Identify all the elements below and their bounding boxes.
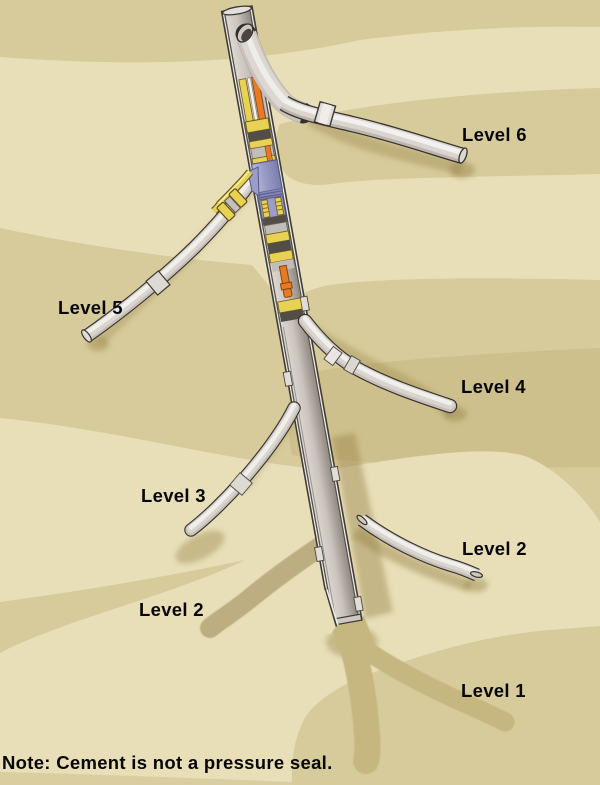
svg-text:Level 3: Level 3 bbox=[141, 485, 206, 506]
svg-text:Level 5: Level 5 bbox=[58, 297, 123, 318]
svg-text:Note: Cement is not a pressure: Note: Cement is not a pressure seal. bbox=[2, 752, 333, 773]
svg-text:Level 4: Level 4 bbox=[461, 376, 526, 397]
svg-text:Level 1: Level 1 bbox=[461, 680, 526, 701]
svg-text:Level 2: Level 2 bbox=[139, 599, 204, 620]
svg-text:Level 2: Level 2 bbox=[462, 538, 527, 559]
svg-text:Level 6: Level 6 bbox=[462, 124, 527, 145]
